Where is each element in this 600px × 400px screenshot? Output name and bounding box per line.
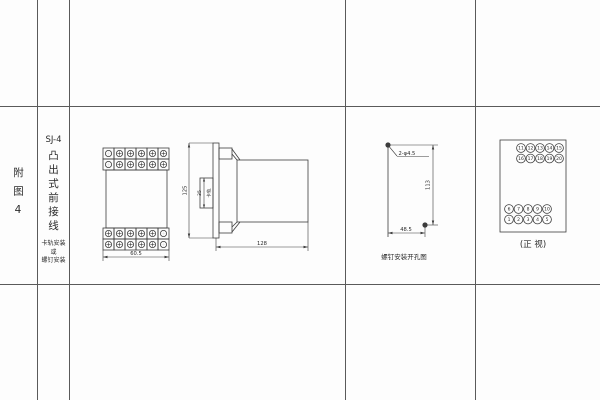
mount-note: 卡轨安装 或 螺钉安装 xyxy=(41,240,65,266)
terminal-number-5: 5 xyxy=(543,215,552,224)
terminal-number-20: 20 xyxy=(555,154,564,163)
terminal-number-label: 1 xyxy=(508,217,511,223)
terminal-number-label: 7 xyxy=(517,207,520,213)
terminal-screw xyxy=(136,228,147,239)
front-terminal-blocks xyxy=(103,148,169,250)
terminal-number-label: 9 xyxy=(536,207,539,213)
terminal-screw xyxy=(136,148,147,159)
terminal-screw xyxy=(103,148,114,159)
terminal-number-label: 20 xyxy=(556,156,562,162)
terminal-number-10: 10 xyxy=(543,205,552,214)
terminal-number-label: 19 xyxy=(547,156,553,162)
terminal-number-label: 18 xyxy=(537,156,543,162)
terminal-number-label: 6 xyxy=(508,207,511,213)
terminal-number-8: 8 xyxy=(524,205,533,214)
leader-line xyxy=(390,147,398,156)
mount-hole-top xyxy=(385,142,390,147)
terminal-screw xyxy=(103,228,114,239)
terminal-screw xyxy=(103,159,114,170)
terminal-screw xyxy=(158,239,169,250)
terminal-number-label: 13 xyxy=(537,146,543,152)
terminal-screw xyxy=(103,239,114,250)
terminal-screw xyxy=(114,148,125,159)
terminal-number-label: 8 xyxy=(527,207,530,213)
terminal-screw xyxy=(147,239,158,250)
hole-size-label: 2-φ4.5 xyxy=(399,151,416,157)
drill-diagram: 2-φ4.5 113 48.5 螺钉安装开孔图 xyxy=(365,135,470,270)
front-view-caption: (正 视) xyxy=(520,239,546,250)
dim-arrow xyxy=(188,143,190,148)
mount-note-line3: 螺钉安装 xyxy=(41,257,65,266)
terminal-number-14: 14 xyxy=(545,144,554,153)
terminal-screw xyxy=(147,228,158,239)
terminal-number-9: 9 xyxy=(533,205,542,214)
terminal-number-label: 14 xyxy=(547,146,553,152)
terminal-screw xyxy=(125,148,136,159)
terminal-number-7: 7 xyxy=(514,205,523,214)
dim-arrow xyxy=(203,178,205,182)
terminal-number-15: 15 xyxy=(555,144,564,153)
relay-body-outline xyxy=(106,170,167,228)
dim-arrow xyxy=(304,246,309,248)
dim-arrow xyxy=(103,256,108,258)
drill-caption: 螺钉安装开孔图 xyxy=(381,252,427,261)
terminal-screw xyxy=(147,148,158,159)
terminal-number-label: 5 xyxy=(546,217,549,223)
dim-arrow xyxy=(188,234,190,239)
terminal-number-11: 11 xyxy=(517,144,526,153)
terminal-screw xyxy=(125,228,136,239)
mount-note-line2: 或 xyxy=(41,249,65,258)
dim-arrow xyxy=(216,246,221,248)
dim-arrow xyxy=(432,145,434,150)
grid-vline-4 xyxy=(475,0,476,400)
terminal-screw xyxy=(136,159,147,170)
mount-hole-bottom xyxy=(422,222,427,227)
terminal-number-label: 3 xyxy=(527,217,530,223)
top-step xyxy=(219,148,232,159)
terminal-screw xyxy=(125,239,136,250)
terminal-number-label: 12 xyxy=(528,146,534,152)
mount-note-line1: 卡轨安装 xyxy=(41,240,65,249)
flange-plate xyxy=(213,143,219,238)
grid-hline-bottom xyxy=(0,284,600,285)
vertical-dim-label: 113 xyxy=(426,180,432,190)
terminal-number-18: 18 xyxy=(536,154,545,163)
terminal-screw xyxy=(114,239,125,250)
terminal-number-16: 16 xyxy=(517,154,526,163)
grid-hline-top xyxy=(0,106,600,107)
terminal-number-label: 11 xyxy=(518,146,524,152)
width-dim-label: 60.5 xyxy=(130,251,142,257)
model-label: SJ-4 xyxy=(45,135,61,145)
terminal-screw xyxy=(136,239,147,250)
terminal-number-3: 3 xyxy=(524,215,533,224)
model-column: SJ-4 凸出式前接线 卡轨安装 或 螺钉安装 xyxy=(38,106,69,284)
horizontal-dim-label: 48.5 xyxy=(400,227,412,233)
dim-arrow xyxy=(165,256,170,258)
bottom-step xyxy=(219,222,232,233)
terminal-screw xyxy=(114,228,125,239)
terminal-screw xyxy=(147,159,158,170)
drawing-sheet: 附图4 SJ-4 凸出式前接线 卡轨安装 或 螺钉安装 60.5 125 xyxy=(0,0,600,400)
dim-arrow xyxy=(388,232,393,234)
rail-text-label: 卡轨 xyxy=(206,188,213,198)
terminal-number-19: 19 xyxy=(545,154,554,163)
terminal-screw xyxy=(125,159,136,170)
depth-dim-label: 128 xyxy=(257,241,267,247)
terminal-screw xyxy=(158,148,169,159)
terminal-number-label: 4 xyxy=(536,217,539,223)
terminal-number-17: 17 xyxy=(526,154,535,163)
height-dim-label: 125 xyxy=(183,186,189,196)
wiring-style-label: 凸出式前接线 xyxy=(46,150,61,234)
terminal-screw xyxy=(158,159,169,170)
terminal-number-6: 6 xyxy=(505,205,514,214)
grid-vline-2 xyxy=(69,0,70,400)
terminal-number-2: 2 xyxy=(514,215,523,224)
terminal-number-12: 12 xyxy=(526,144,535,153)
side-view-drawing: 125 35 卡轨 128 xyxy=(180,135,315,260)
terminal-screw xyxy=(114,159,125,170)
terminal-number-label: 10 xyxy=(544,207,550,213)
terminal-number-label: 16 xyxy=(518,156,524,162)
rail-dim-label: 35 xyxy=(197,190,203,196)
terminal-number-label: 17 xyxy=(528,156,534,162)
terminal-numbering-view: 1112131415161718192067891012345 (正 视) xyxy=(488,130,593,258)
dim-arrow xyxy=(421,232,426,234)
figure-label: 附图4 xyxy=(11,167,26,224)
front-view-drawing: 60.5 xyxy=(95,135,180,270)
terminal-number-label: 2 xyxy=(517,217,520,223)
figure-label-cell: 附图4 xyxy=(0,106,37,284)
grid-vline-3 xyxy=(345,0,346,400)
terminal-circles: 1112131415161718192067891012345 xyxy=(505,144,564,224)
dim-arrow xyxy=(203,205,205,209)
terminal-number-13: 13 xyxy=(536,144,545,153)
terminal-screw xyxy=(158,228,169,239)
dim-arrow xyxy=(432,221,434,226)
relay-body-side xyxy=(237,160,308,222)
terminal-number-4: 4 xyxy=(533,215,542,224)
terminal-number-label: 15 xyxy=(556,146,562,152)
terminal-number-1: 1 xyxy=(505,215,514,224)
